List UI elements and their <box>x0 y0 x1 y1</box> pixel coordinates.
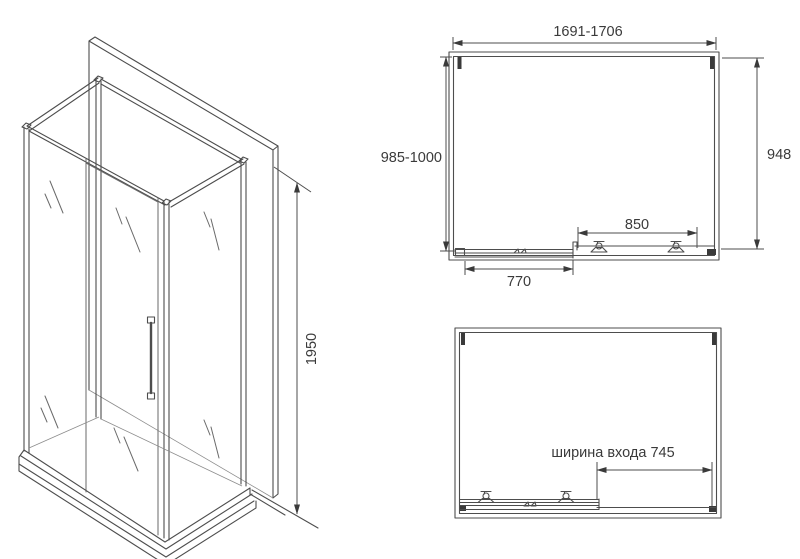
shower-enclosure-drawing: 1950 <box>0 0 800 559</box>
dim-door-770: 770 <box>507 274 531 290</box>
door-roller-2 <box>668 242 684 253</box>
corner-bracket-right <box>709 506 716 512</box>
sparkle-strokes <box>41 181 219 471</box>
iso-top-rails <box>27 78 244 207</box>
plan-open-dimensions: ширина входа 745 <box>551 445 712 506</box>
dim-depth-right: 948 <box>767 147 791 163</box>
dim-entrance-width: ширина входа 745 <box>551 445 674 461</box>
door-extensions <box>465 260 573 275</box>
dim-width-range: 1691-1706 <box>553 24 622 40</box>
plan-view-open: ширина входа 745 <box>455 328 721 518</box>
plan-closed-dimensions: 1691-1706 985-1000 948 850 770 <box>381 24 791 290</box>
door-roller-2 <box>558 492 574 503</box>
door-edges <box>86 159 158 535</box>
back-panel-outline <box>89 37 278 498</box>
base-interior-edges <box>29 417 242 486</box>
track-rail-line <box>460 500 716 508</box>
plan-closed-frame <box>449 52 719 260</box>
frame-inner <box>460 333 717 514</box>
rails-outline <box>27 78 244 207</box>
entrance-extensions <box>597 462 712 506</box>
door-roller-1 <box>591 242 607 253</box>
glass-sparkles <box>41 181 219 471</box>
dim-depth-left: 985-1000 <box>381 150 442 166</box>
wall-profile-right <box>712 333 716 345</box>
wall-profile-left <box>461 333 465 345</box>
frame-inner <box>454 57 715 256</box>
iso-sliding-door <box>86 159 158 535</box>
door-roller-1 <box>478 492 494 503</box>
frame-outer <box>455 328 721 518</box>
dim-track-850: 850 <box>625 217 649 233</box>
iso-view-drawing: 1950 <box>19 37 320 559</box>
plan-open-frame <box>455 328 721 518</box>
technical-drawing-canvas: 1950 <box>0 0 800 559</box>
back-panel-bottom-edge <box>89 390 273 498</box>
corner-bracket-right <box>707 249 716 255</box>
depth-right-extensions <box>721 58 764 249</box>
plan-open-track <box>460 492 716 510</box>
plan-view-closed: 1691-1706 985-1000 948 850 770 <box>381 24 791 290</box>
iso-height-dimension: 1950 <box>274 167 320 514</box>
height-extension-top <box>274 167 311 192</box>
iso-back-panel <box>89 37 278 498</box>
dim-height-1950: 1950 <box>304 333 320 365</box>
frame-outer <box>449 52 719 260</box>
wall-profile-left <box>458 57 462 69</box>
wall-profile-right <box>710 57 714 69</box>
